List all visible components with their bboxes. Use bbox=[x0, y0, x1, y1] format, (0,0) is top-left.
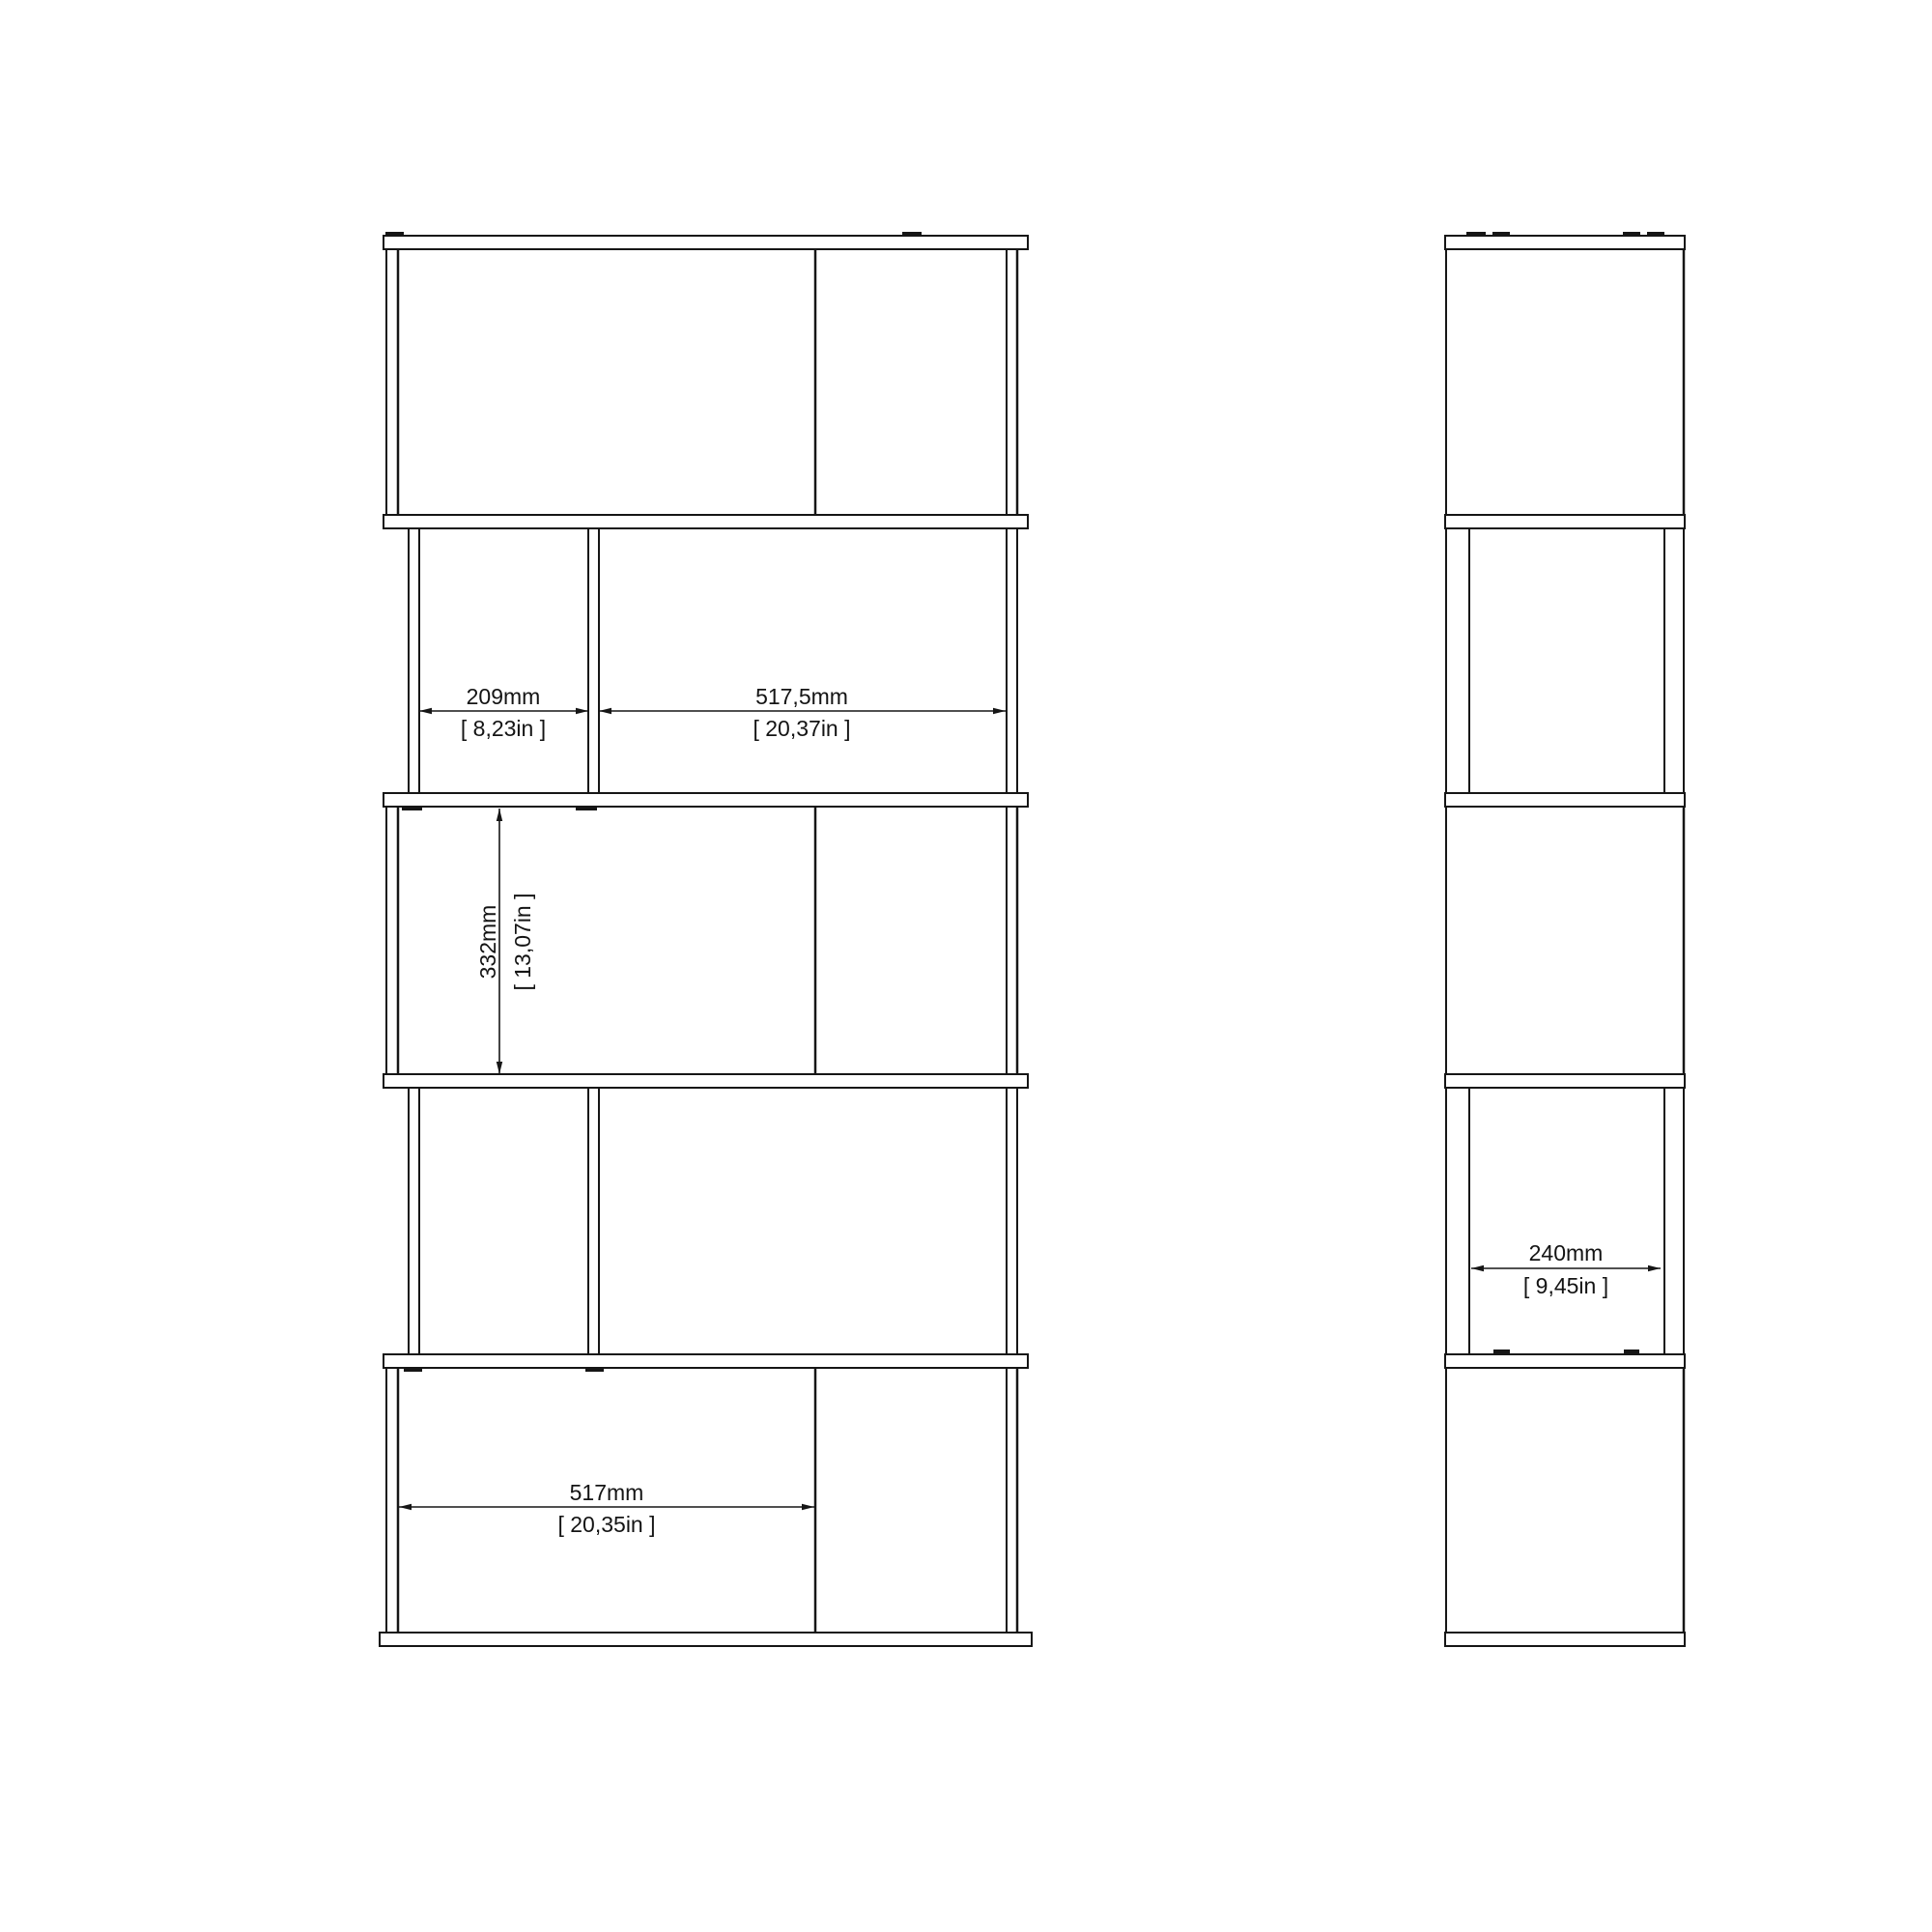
dim-arrow bbox=[1471, 1265, 1484, 1271]
front-shelf-board-3 bbox=[384, 1074, 1028, 1088]
dim-arrow bbox=[1648, 1265, 1661, 1271]
dimension-209mm: 209mm [ 8,23in ] bbox=[419, 684, 588, 741]
dim-text-mm: 209mm bbox=[467, 684, 541, 709]
technical-drawing: 209mm [ 8,23in ] 517,5mm [ 20,37in ] 332… bbox=[0, 0, 1932, 1932]
front-tier-2 bbox=[409, 528, 1017, 793]
drawing-canvas: 209mm [ 8,23in ] 517,5mm [ 20,37in ] 332… bbox=[0, 0, 1932, 1932]
dim-text-mm: 517,5mm bbox=[755, 684, 848, 709]
dim-text-mm: 517mm bbox=[570, 1480, 644, 1505]
side-shelf-board-4 bbox=[1445, 1354, 1685, 1368]
front-shelf-board-4 bbox=[384, 1354, 1028, 1368]
front-bottom-board bbox=[380, 1633, 1032, 1646]
side-tier-3 bbox=[1446, 807, 1684, 1074]
side-shelf-board-1 bbox=[1445, 515, 1685, 528]
dim-text-in: [ 20,37in ] bbox=[753, 716, 850, 741]
dim-arrow bbox=[599, 708, 611, 714]
dim-arrow bbox=[399, 1504, 412, 1510]
dim-arrow bbox=[993, 708, 1006, 714]
side-shelf-board-2 bbox=[1445, 793, 1685, 807]
front-tier-4 bbox=[409, 1088, 1017, 1354]
side-shelf-board-3 bbox=[1445, 1074, 1685, 1088]
dim-text-in: [ 20,35in ] bbox=[557, 1512, 655, 1537]
dim-text-mm: 240mm bbox=[1529, 1240, 1604, 1265]
dim-arrow bbox=[419, 708, 432, 714]
front-tier-5 bbox=[386, 1368, 1017, 1633]
side-tier-4 bbox=[1446, 1088, 1684, 1354]
front-tier-1 bbox=[386, 249, 1017, 515]
dim-text-in: [ 8,23in ] bbox=[461, 716, 546, 741]
side-tier-1 bbox=[1446, 249, 1684, 515]
side-bottom-board bbox=[1445, 1633, 1685, 1646]
dim-arrow bbox=[497, 1062, 502, 1074]
side-top-board bbox=[1445, 236, 1685, 249]
dim-arrow bbox=[802, 1504, 814, 1510]
dim-text-in: [ 13,07in ] bbox=[510, 893, 535, 990]
front-shelf-board-1 bbox=[384, 515, 1028, 528]
dim-text-mm: 332mm bbox=[475, 905, 500, 980]
side-view bbox=[1445, 232, 1685, 1646]
dim-text-in: [ 9,45in ] bbox=[1523, 1273, 1608, 1298]
dimension-517mm: 517mm [ 20,35in ] bbox=[399, 1480, 814, 1537]
dim-arrow bbox=[497, 809, 502, 821]
side-shelf-boards bbox=[1445, 236, 1685, 1646]
side-tier-5 bbox=[1446, 1368, 1684, 1633]
dimension-517-5mm: 517,5mm [ 20,37in ] bbox=[599, 684, 1006, 741]
front-shelf-board-2 bbox=[384, 793, 1028, 807]
dimension-332mm: 332mm [ 13,07in ] bbox=[475, 809, 535, 1074]
dim-arrow bbox=[576, 708, 588, 714]
dimension-240mm: 240mm [ 9,45in ] bbox=[1471, 1240, 1661, 1298]
side-tier-2 bbox=[1446, 528, 1684, 793]
front-top-board bbox=[384, 236, 1028, 249]
